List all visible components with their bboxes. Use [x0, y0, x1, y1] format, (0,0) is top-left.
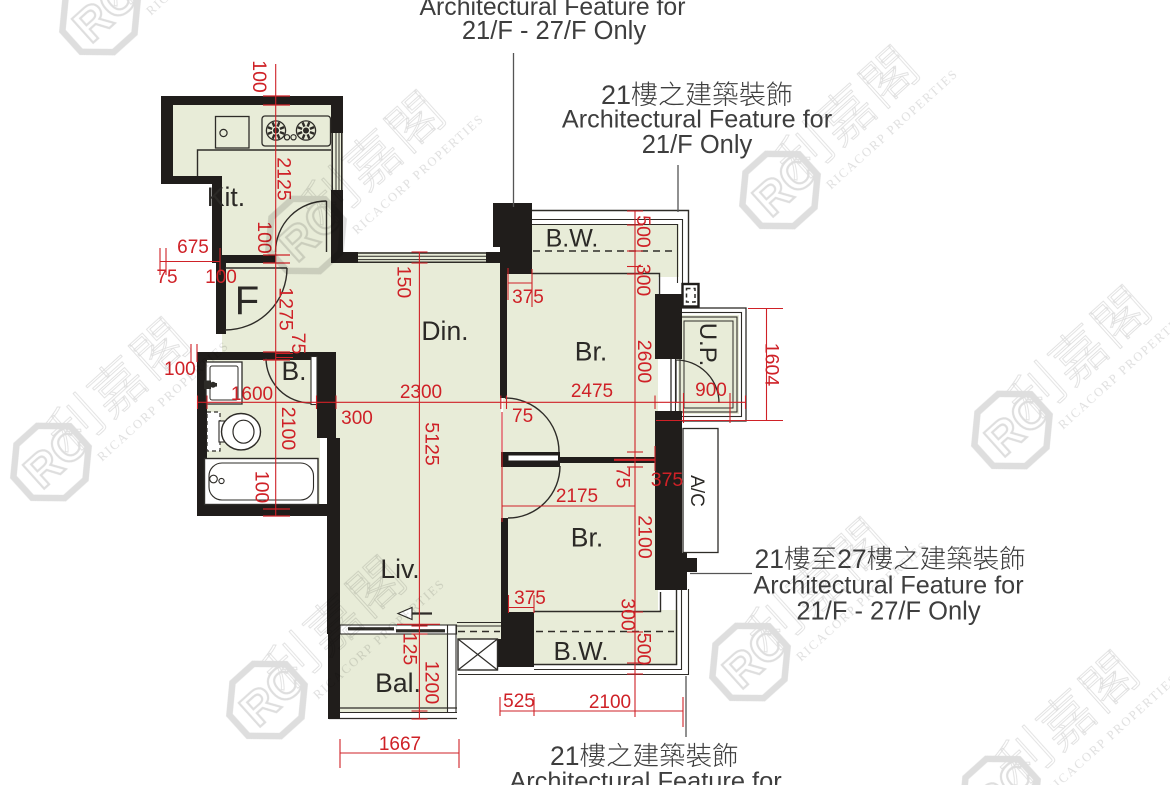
svg-text:125: 125 — [399, 633, 421, 666]
svg-text:Bal.: Bal. — [375, 668, 421, 698]
svg-text:21/F Only: 21/F Only — [642, 131, 753, 159]
svg-text:100: 100 — [248, 60, 270, 93]
svg-text:A/C: A/C — [686, 475, 707, 507]
svg-text:Din.: Din. — [421, 316, 468, 346]
svg-text:500: 500 — [633, 633, 655, 666]
svg-text:300: 300 — [341, 408, 373, 429]
svg-text:1200: 1200 — [421, 661, 443, 705]
svg-text:375: 375 — [512, 287, 544, 308]
svg-text:Kit.: Kit. — [207, 182, 245, 212]
svg-text:B.W.: B.W. — [546, 225, 599, 253]
svg-text:Br.: Br. — [571, 523, 603, 553]
svg-text:21: 21 — [755, 544, 784, 574]
svg-text:100: 100 — [251, 471, 273, 504]
svg-text:2600: 2600 — [633, 340, 655, 384]
svg-text:2100: 2100 — [277, 407, 299, 451]
svg-text:500: 500 — [632, 215, 654, 248]
svg-text:2475: 2475 — [571, 381, 613, 402]
svg-text:RICACORP PROPERTIES: RICACORP PROPERTIES — [144, 0, 281, 18]
svg-text:21/F - 27/F Only: 21/F - 27/F Only — [462, 17, 646, 45]
svg-text:2300: 2300 — [400, 382, 442, 403]
svg-text:300: 300 — [632, 264, 654, 297]
svg-text:900: 900 — [695, 380, 727, 401]
svg-text:2125: 2125 — [273, 157, 295, 201]
svg-text:21: 21 — [550, 741, 579, 771]
svg-text:75: 75 — [612, 467, 634, 489]
svg-text:F: F — [235, 279, 259, 323]
svg-text:Architectural Feature for: Architectural Feature for — [562, 106, 832, 134]
svg-text:2100: 2100 — [589, 692, 631, 713]
svg-text:1604: 1604 — [761, 343, 783, 387]
svg-text:2175: 2175 — [556, 486, 598, 507]
svg-text:2100: 2100 — [634, 515, 656, 559]
svg-text:375: 375 — [514, 588, 546, 609]
svg-text:1667: 1667 — [379, 734, 421, 755]
svg-text:U.P.: U.P. — [694, 323, 721, 367]
svg-text:100: 100 — [205, 267, 237, 288]
svg-text:300: 300 — [617, 598, 639, 631]
svg-text:675: 675 — [177, 237, 209, 258]
svg-text:5125: 5125 — [421, 422, 443, 466]
svg-text:75: 75 — [287, 333, 309, 355]
svg-text:75: 75 — [512, 406, 533, 427]
svg-text:Architectural Feature for: Architectural Feature for — [509, 768, 782, 786]
svg-text:150: 150 — [393, 266, 415, 299]
svg-text:1275: 1275 — [275, 287, 297, 331]
svg-text:B.W.: B.W. — [554, 636, 609, 666]
svg-text:Br.: Br. — [575, 337, 607, 367]
svg-text:1600: 1600 — [231, 384, 273, 405]
svg-text:375: 375 — [651, 469, 684, 491]
svg-text:75: 75 — [156, 267, 177, 288]
svg-text:525: 525 — [503, 691, 535, 712]
